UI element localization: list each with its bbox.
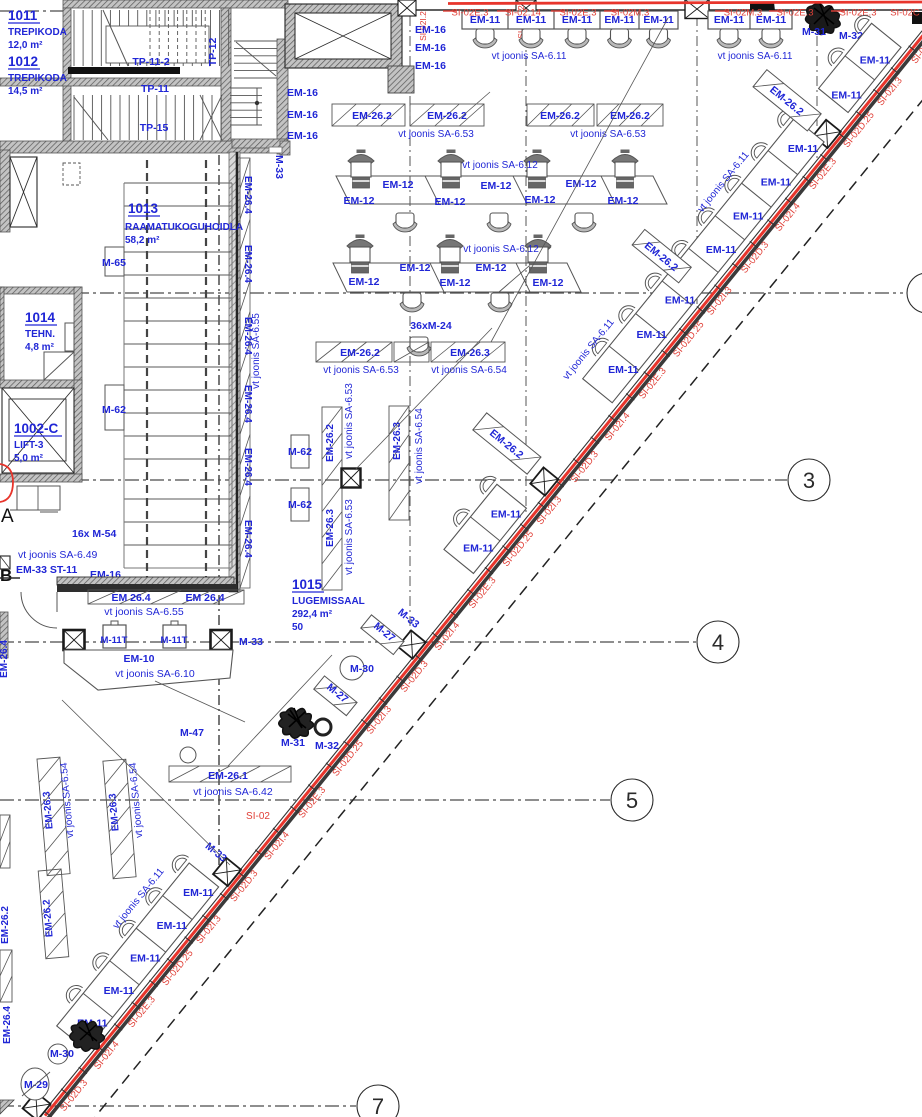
svg-text:SI-02M.3: SI-02M.3 (724, 8, 763, 19)
svg-text:EM-12: EM-12 (608, 195, 639, 207)
svg-text:50: 50 (292, 622, 304, 633)
svg-text:EM-26.4: EM-26.4 (242, 448, 253, 486)
svg-text:vt joonis SA-6.10: vt joonis SA-6.10 (115, 668, 195, 680)
svg-text:EM-11: EM-11 (831, 89, 862, 101)
svg-text:EM-26.4: EM-26.4 (242, 520, 253, 558)
svg-text:EM 26.4: EM 26.4 (185, 592, 224, 604)
svg-text:vt joonis SA-6.54: vt joonis SA-6.54 (414, 408, 425, 484)
svg-text:EM-26.3: EM-26.3 (450, 347, 490, 359)
svg-text:vt joonis SA-6.42: vt joonis SA-6.42 (193, 786, 273, 798)
svg-text:vt joonis SA-6.55: vt joonis SA-6.55 (104, 606, 184, 618)
svg-text:EM-12: EM-12 (400, 262, 431, 274)
svg-text:EM-11: EM-11 (788, 143, 819, 155)
svg-text:vt joonis SA-6.49: vt joonis SA-6.49 (18, 549, 98, 561)
svg-text:EM 26.4: EM 26.4 (111, 592, 150, 604)
svg-text:58,2 m²: 58,2 m² (125, 235, 160, 246)
svg-text:EM-26.4: EM-26.4 (242, 245, 253, 283)
svg-text:EM-12: EM-12 (435, 196, 466, 208)
svg-text:vt joonis SA-6.55: vt joonis SA-6.55 (251, 313, 262, 389)
svg-text:5: 5 (626, 788, 638, 813)
svg-text:EM-26.2: EM-26.2 (340, 347, 380, 359)
svg-text:EM-26.2: EM-26.2 (352, 110, 392, 122)
svg-text:LIFT-3: LIFT-3 (14, 440, 44, 451)
svg-text:EM-26.2: EM-26.2 (325, 424, 336, 462)
svg-text:SI-02E.3: SI-02E.3 (777, 8, 814, 19)
svg-text:vt joonis SA-6.12: vt joonis SA-6.12 (462, 160, 538, 171)
svg-text:A: A (1, 506, 14, 527)
svg-text:SI-02.14: SI-02.14 (505, 8, 541, 19)
svg-text:vt joonis SA-6.53: vt joonis SA-6.53 (344, 383, 355, 459)
svg-text:SI-02E.3: SI-02E.3 (840, 8, 877, 19)
svg-text:EM-11: EM-11 (706, 244, 737, 256)
svg-text:EM-11: EM-11 (491, 508, 522, 520)
svg-text:1011: 1011 (8, 8, 38, 23)
svg-text:SI-02: SI-02 (246, 811, 270, 822)
svg-text:EM-26.4: EM-26.4 (242, 176, 253, 214)
svg-text:TP-11-2: TP-11-2 (132, 56, 170, 68)
svg-text:SI-02E.3: SI-02E.3 (560, 8, 597, 19)
svg-text:3: 3 (803, 468, 815, 493)
svg-text:1015: 1015 (292, 577, 323, 592)
svg-text:M-30: M-30 (350, 663, 374, 675)
svg-text:vt joonis SA-6.11: vt joonis SA-6.11 (718, 51, 793, 62)
svg-text:EM-11: EM-11 (637, 329, 668, 341)
svg-text:EM-26.2: EM-26.2 (0, 906, 11, 944)
svg-text:M-33: M-33 (239, 636, 263, 648)
svg-text:EM-11: EM-11 (608, 364, 639, 376)
svg-text:EM-16: EM-16 (287, 87, 318, 99)
svg-text:12,0 m²: 12,0 m² (8, 40, 43, 51)
svg-text:EM-33 ST-11: EM-33 ST-11 (16, 564, 77, 576)
svg-text:1002-C: 1002-C (14, 421, 59, 436)
svg-text:EM-12: EM-12 (566, 178, 597, 190)
svg-text:M-29: M-29 (24, 1079, 48, 1091)
svg-text:EM-10: EM-10 (124, 653, 155, 665)
svg-text:M-62: M-62 (288, 446, 312, 458)
svg-text:EM-12: EM-12 (440, 277, 471, 289)
svg-text:EM-11: EM-11 (130, 952, 161, 964)
svg-text:TREPIKODA: TREPIKODA (8, 27, 67, 38)
svg-text:LUGEMISSAAL: LUGEMISSAAL (292, 596, 365, 607)
svg-text:TP-15: TP-15 (140, 122, 169, 134)
svg-text:EM-16: EM-16 (287, 109, 318, 121)
svg-text:M-11T: M-11T (101, 635, 128, 646)
svg-text:EM-11: EM-11 (761, 176, 792, 188)
svg-text:5,0 m²: 5,0 m² (14, 453, 44, 464)
svg-text:M-62: M-62 (102, 404, 126, 416)
svg-text:RAAMATUKOGUHOIDLA: RAAMATUKOGUHOIDLA (125, 222, 243, 233)
svg-text:EM-16: EM-16 (415, 24, 446, 36)
svg-text:vt joonis SA-6.53: vt joonis SA-6.53 (398, 129, 474, 140)
svg-text:M-62: M-62 (288, 499, 312, 511)
svg-text:EM-26.3: EM-26.3 (392, 422, 403, 460)
svg-text:EM-16: EM-16 (287, 130, 318, 142)
svg-text:1014: 1014 (25, 310, 56, 325)
svg-text:EM-11: EM-11 (183, 887, 214, 899)
svg-text:TP-11: TP-11 (141, 83, 169, 95)
svg-text:vt joonis SA-6.53: vt joonis SA-6.53 (570, 129, 646, 140)
svg-text:7: 7 (372, 1094, 384, 1117)
svg-text:vt joonis SA-6.12: vt joonis SA-6.12 (463, 244, 539, 255)
svg-text:M-31: M-31 (281, 737, 305, 749)
svg-text:M-33: M-33 (273, 155, 285, 179)
svg-text:vt joonis SA-6.54: vt joonis SA-6.54 (431, 365, 507, 376)
svg-text:vt joonis SA-6.53: vt joonis SA-6.53 (344, 499, 355, 575)
svg-text:TP-12: TP-12 (207, 38, 219, 67)
svg-text:EM-26.2: EM-26.2 (427, 110, 467, 122)
svg-text:4: 4 (712, 630, 724, 655)
svg-text:EM-26.1: EM-26.1 (208, 770, 248, 782)
svg-text:M-47: M-47 (180, 727, 204, 739)
svg-text:EM-11: EM-11 (157, 920, 188, 932)
svg-text:M-30: M-30 (50, 1048, 74, 1060)
svg-text:EM-11: EM-11 (104, 985, 135, 997)
svg-text:M-65: M-65 (102, 257, 126, 269)
svg-text:EM-12: EM-12 (349, 276, 380, 288)
svg-text:M-11T: M-11T (161, 635, 188, 646)
svg-text:EM-12: EM-12 (344, 195, 375, 207)
svg-text:EM-12: EM-12 (481, 180, 512, 192)
svg-text:TEHN.: TEHN. (25, 329, 55, 340)
svg-text:EM-16: EM-16 (415, 60, 446, 72)
svg-text:EM-12: EM-12 (476, 262, 507, 274)
svg-text:EM-11: EM-11 (733, 210, 764, 222)
svg-text:vt joonis SA-6.53: vt joonis SA-6.53 (323, 365, 399, 376)
svg-text:EM-12: EM-12 (525, 194, 556, 206)
svg-text:EM-26.4: EM-26.4 (2, 1006, 13, 1044)
svg-text:14,5 m²: 14,5 m² (8, 86, 43, 97)
svg-text:36xM-24: 36xM-24 (410, 320, 452, 332)
svg-text:M-31: M-31 (802, 26, 826, 38)
svg-text:EM-11: EM-11 (463, 543, 494, 555)
svg-text:16x M-54: 16x M-54 (72, 528, 117, 540)
svg-text:EM-26.3: EM-26.3 (325, 509, 336, 547)
svg-text:M-32: M-32 (315, 740, 339, 752)
svg-text:EM-11: EM-11 (665, 294, 696, 306)
svg-text:EM-11: EM-11 (860, 54, 891, 66)
svg-text:SI-02C: SI-02C (890, 8, 920, 19)
svg-text:292,4 m²: 292,4 m² (292, 609, 333, 620)
svg-text:EM-26.4: EM-26.4 (242, 385, 253, 423)
svg-text:EM-16: EM-16 (415, 42, 446, 54)
svg-text:SI-02M.3: SI-02M.3 (611, 8, 650, 19)
svg-text:TREPIKODA: TREPIKODA (8, 73, 67, 84)
svg-text:EM-12: EM-12 (533, 277, 564, 289)
svg-text:1012: 1012 (8, 54, 38, 69)
svg-text:4,8 m²: 4,8 m² (25, 342, 55, 353)
svg-text:vt joonis SA-6.11: vt joonis SA-6.11 (492, 51, 567, 62)
svg-text:EM-12: EM-12 (383, 179, 414, 191)
svg-text:SI-02E.3: SI-02E.3 (452, 8, 489, 19)
svg-text:1013: 1013 (128, 201, 159, 216)
svg-text:EM-26.2: EM-26.2 (610, 110, 650, 122)
svg-text:EM-26.2: EM-26.2 (540, 110, 580, 122)
svg-text:EM-26.4: EM-26.4 (0, 640, 10, 678)
